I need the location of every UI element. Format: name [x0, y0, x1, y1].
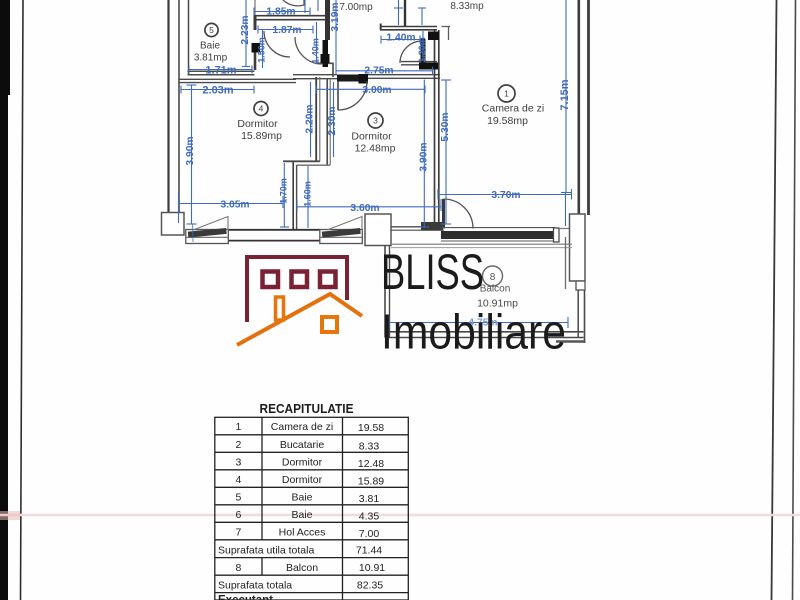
svg-text:15.89: 15.89 [358, 476, 384, 488]
svg-text:1.85m: 1.85m [266, 7, 295, 18]
svg-text:7.00mp: 7.00mp [339, 2, 373, 13]
svg-text:10.91: 10.91 [359, 562, 385, 574]
svg-text:2.23m: 2.23m [240, 15, 251, 44]
svg-text:Baie: Baie [291, 509, 312, 521]
svg-text:Balcon: Balcon [480, 284, 511, 295]
svg-text:Baie: Baie [291, 492, 312, 504]
svg-text:1.71m: 1.71m [205, 65, 236, 77]
svg-text:2.03m: 2.03m [202, 85, 233, 97]
svg-text:4: 4 [235, 474, 241, 486]
svg-text:4.35: 4.35 [359, 511, 380, 523]
svg-text:3: 3 [235, 457, 241, 469]
svg-text:2.75m: 2.75m [364, 66, 393, 77]
svg-text:Camera de zi: Camera de zi [482, 103, 544, 115]
svg-text:1.87m: 1.87m [272, 25, 301, 36]
svg-text:8.33mp: 8.33mp [450, 1, 484, 12]
svg-text:1.50m: 1.50m [257, 37, 267, 63]
svg-text:BLISS: BLISS [381, 244, 484, 300]
svg-text:2.20m: 2.20m [305, 104, 316, 133]
svg-text:Camera de zi: Camera de zi [271, 421, 333, 433]
svg-text:Executant: Executant [218, 595, 273, 600]
svg-text:2.30m: 2.30m [327, 106, 338, 135]
svg-text:7.15m: 7.15m [559, 79, 571, 110]
svg-text:3: 3 [373, 116, 378, 126]
svg-text:1: 1 [235, 421, 241, 433]
svg-text:Suprafata utila totala: Suprafata utila totala [218, 545, 314, 557]
svg-text:5: 5 [235, 492, 241, 504]
svg-text:19.58mp: 19.58mp [487, 115, 528, 127]
svg-text:Dormitor: Dormitor [237, 118, 278, 130]
svg-text:3.81: 3.81 [359, 493, 380, 505]
svg-text:5: 5 [209, 25, 214, 35]
svg-text:1.20m: 1.20m [417, 37, 427, 63]
svg-text:82.35: 82.35 [357, 580, 383, 592]
svg-text:Bucatarie: Bucatarie [280, 439, 325, 451]
svg-text:RECAPITULATIE: RECAPITULATIE [260, 401, 354, 416]
svg-text:3.81mp: 3.81mp [194, 53, 228, 64]
svg-text:3.60m: 3.60m [350, 203, 379, 214]
svg-text:7: 7 [235, 527, 241, 539]
svg-text:3.05m: 3.05m [220, 200, 249, 211]
svg-text:5.30m: 5.30m [440, 112, 451, 141]
svg-text:3.70m: 3.70m [491, 190, 520, 201]
svg-text:1.40m: 1.40m [386, 33, 415, 44]
svg-text:1.40m: 1.40m [311, 38, 321, 64]
svg-text:8.33: 8.33 [359, 441, 380, 453]
svg-text:Dormitor: Dormitor [282, 474, 323, 486]
svg-text:Dormitor: Dormitor [282, 457, 323, 469]
svg-text:8: 8 [490, 272, 496, 283]
svg-text:71.44: 71.44 [356, 545, 382, 557]
svg-text:12.48mp: 12.48mp [355, 143, 396, 155]
svg-text:12.48: 12.48 [358, 458, 384, 470]
svg-text:3.90m: 3.90m [418, 142, 429, 171]
svg-text:3.90m: 3.90m [185, 136, 196, 165]
svg-text:3.00m: 3.00m [362, 85, 391, 96]
svg-text:1: 1 [504, 89, 509, 99]
svg-text:8: 8 [235, 562, 241, 574]
svg-text:6: 6 [235, 509, 241, 521]
svg-text:Dormitor: Dormitor [351, 131, 392, 143]
svg-text:Balcon: Balcon [286, 562, 318, 574]
svg-text:Imobiliare: Imobiliare [381, 304, 566, 359]
svg-text:Baie: Baie [200, 41, 220, 52]
svg-text:Suprafata totala: Suprafata totala [218, 580, 292, 592]
svg-text:2: 2 [235, 439, 241, 451]
svg-text:4: 4 [259, 104, 264, 114]
svg-text:19.58: 19.58 [358, 422, 384, 434]
svg-text:15.89mp: 15.89mp [241, 130, 282, 142]
svg-text:7.00: 7.00 [359, 528, 380, 540]
svg-text:3.19m: 3.19m [330, 2, 341, 31]
svg-text:1.70m: 1.70m [279, 178, 289, 204]
svg-text:1.60m: 1.60m [303, 181, 313, 207]
svg-text:Hol Acces: Hol Acces [279, 527, 326, 539]
